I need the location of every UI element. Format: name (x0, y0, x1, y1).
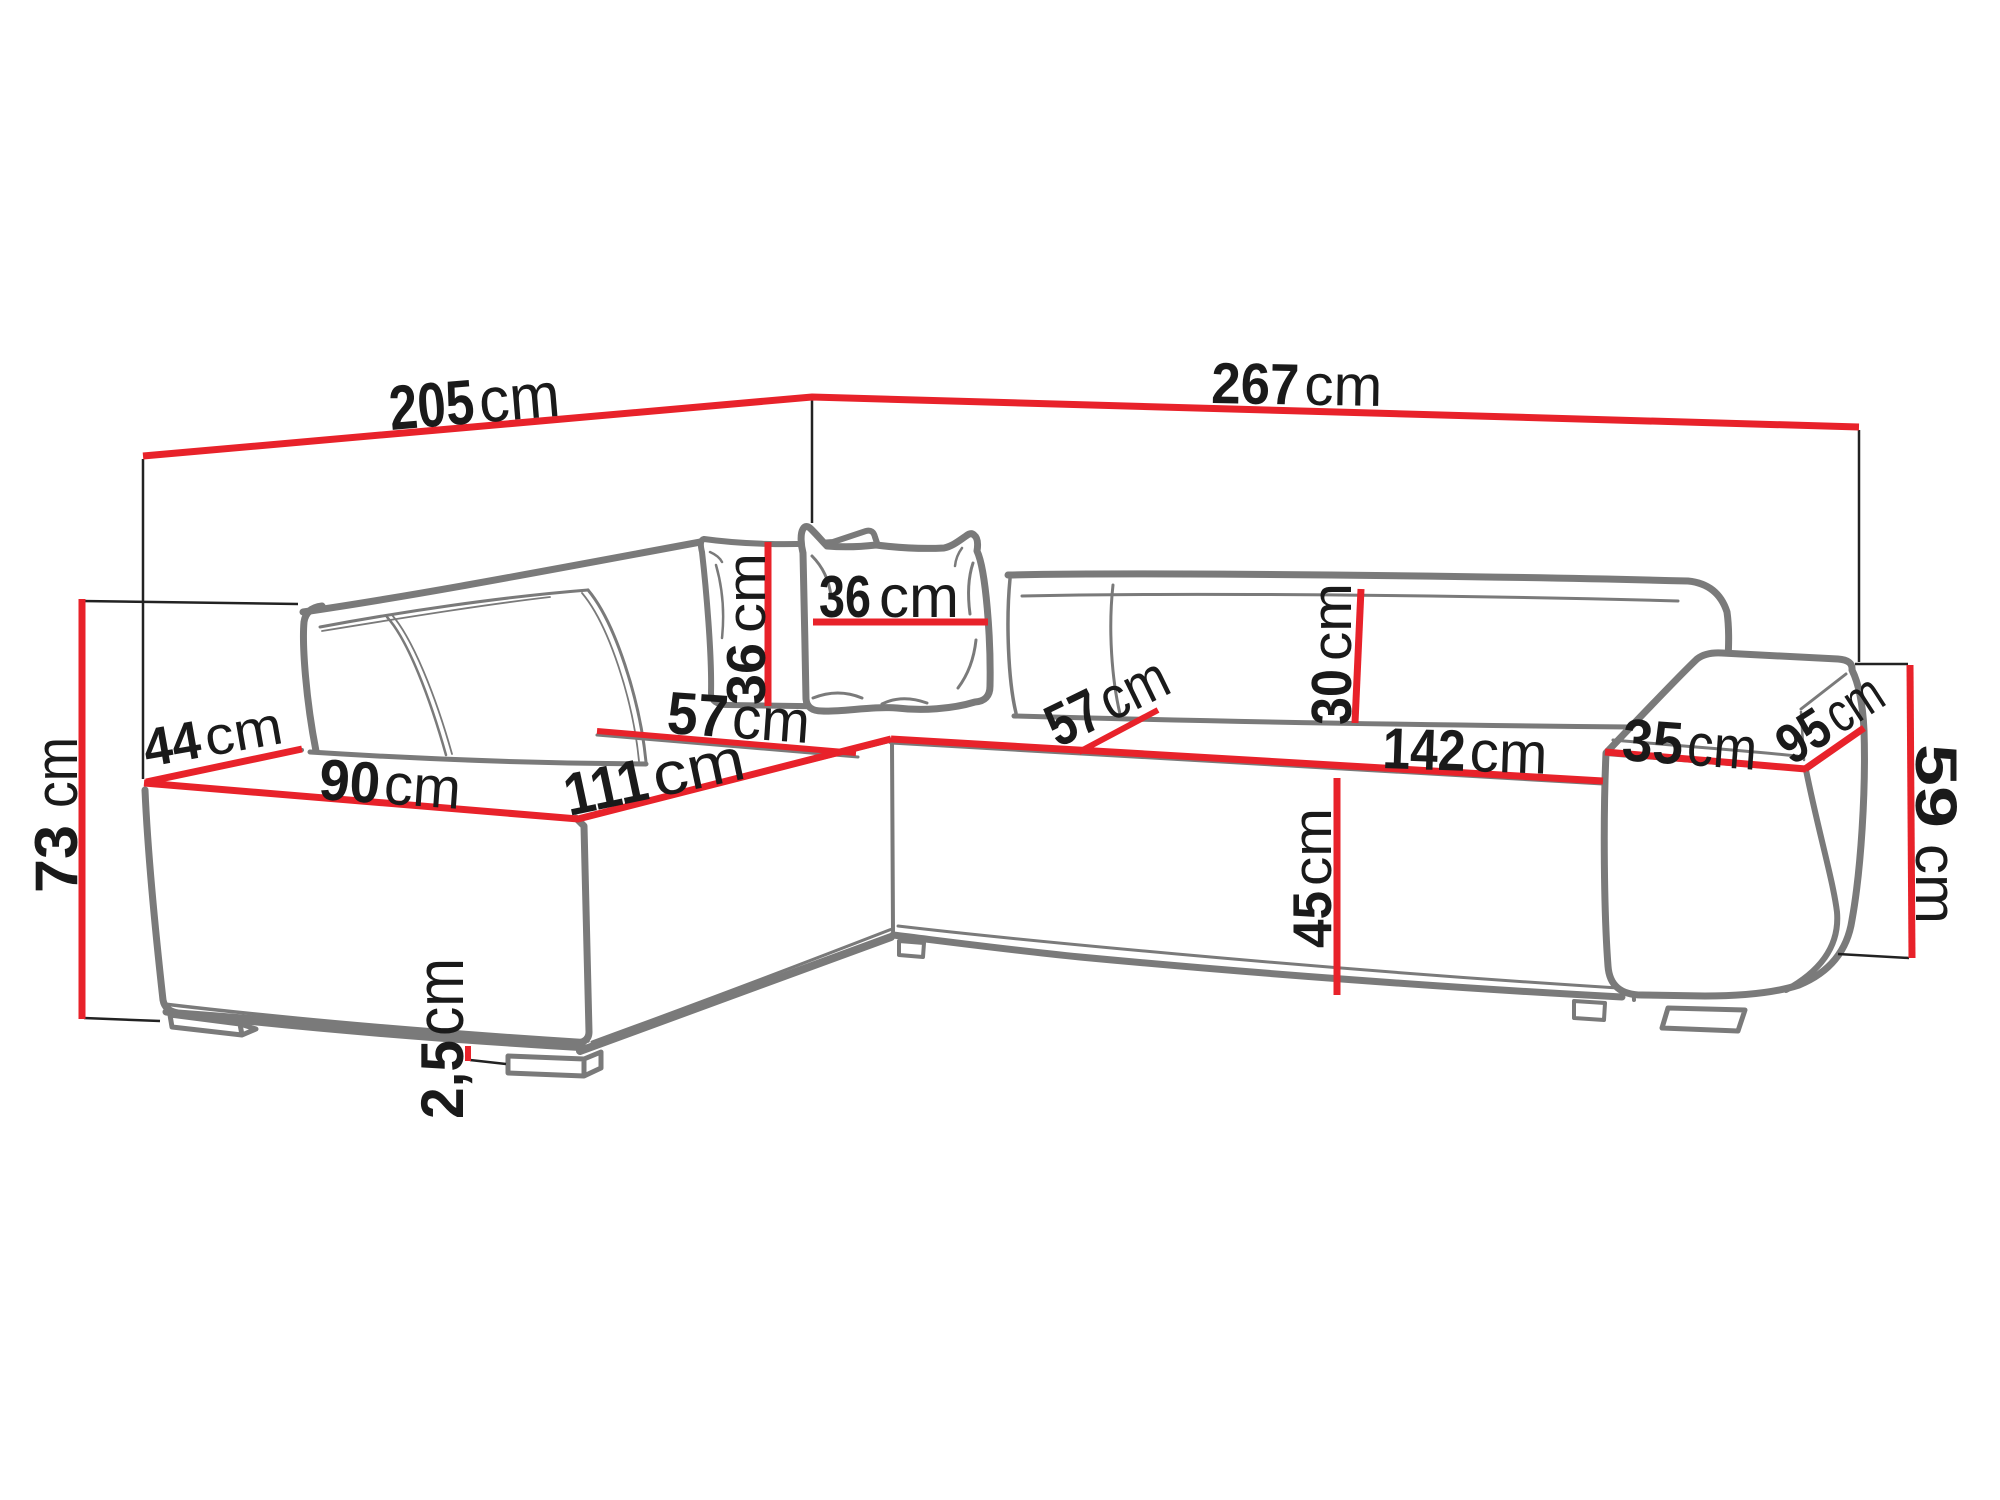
svg-text:45cm: 45cm (1281, 808, 1343, 948)
svg-text:36cm: 36cm (819, 564, 959, 630)
svg-text:90cm: 90cm (317, 747, 463, 822)
svg-text:36cm: 36cm (715, 553, 777, 705)
svg-text:267cm: 267cm (1211, 351, 1383, 419)
svg-text:35cm: 35cm (1620, 706, 1760, 783)
svg-text:30cm: 30cm (1300, 583, 1364, 725)
